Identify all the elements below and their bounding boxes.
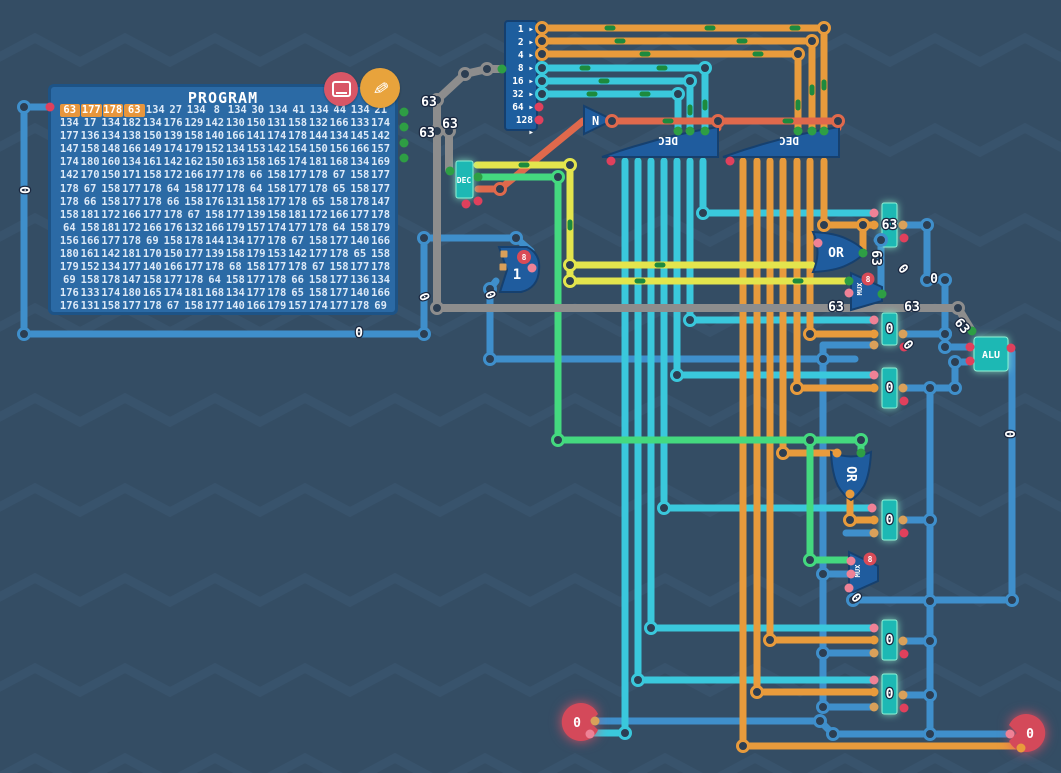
signal-on-mark xyxy=(688,105,693,116)
wire-value-label: 63 xyxy=(904,300,920,315)
pin[interactable] xyxy=(845,277,854,286)
wire-node[interactable] xyxy=(419,233,430,244)
wire-node[interactable] xyxy=(620,728,631,739)
signal-on-mark xyxy=(587,92,598,97)
pin[interactable] xyxy=(607,157,616,166)
wire-node[interactable] xyxy=(818,648,829,659)
pin[interactable] xyxy=(900,704,909,713)
pin[interactable] xyxy=(674,127,683,136)
pin[interactable] xyxy=(400,139,409,148)
wire-node[interactable] xyxy=(953,303,964,314)
wire-node[interactable] xyxy=(673,89,684,100)
pin[interactable] xyxy=(833,449,842,458)
wire-node[interactable] xyxy=(419,329,430,340)
wire-node[interactable] xyxy=(672,370,683,381)
wire-node[interactable] xyxy=(19,329,30,340)
wire-node[interactable] xyxy=(537,89,548,100)
pin[interactable] xyxy=(814,239,823,248)
pin[interactable] xyxy=(586,730,595,739)
pin[interactable] xyxy=(1017,744,1026,753)
wire-node[interactable] xyxy=(940,275,951,286)
wire-node[interactable] xyxy=(460,69,471,80)
pin[interactable] xyxy=(446,167,455,176)
wire-node[interactable] xyxy=(698,208,709,219)
wire-node[interactable] xyxy=(940,342,951,353)
signal-on-mark xyxy=(615,39,626,44)
wire-node[interactable] xyxy=(815,716,826,727)
wire-node[interactable] xyxy=(856,435,867,446)
wire-node[interactable] xyxy=(537,76,548,87)
signal-on-mark xyxy=(599,79,610,84)
wire-node[interactable] xyxy=(925,515,936,526)
wire-node[interactable] xyxy=(537,49,548,60)
signal-on-mark xyxy=(705,26,716,31)
pin[interactable] xyxy=(701,127,710,136)
wire-node[interactable] xyxy=(646,623,657,634)
signal-on-mark xyxy=(796,100,801,111)
wire-node[interactable] xyxy=(685,76,696,87)
pin[interactable] xyxy=(868,504,877,513)
pin[interactable] xyxy=(966,357,975,366)
wire-node[interactable] xyxy=(793,49,804,60)
pin[interactable] xyxy=(899,330,908,339)
wire-node[interactable] xyxy=(950,383,961,394)
pin[interactable] xyxy=(1006,730,1015,739)
pin[interactable] xyxy=(899,384,908,393)
pin[interactable] xyxy=(808,127,817,136)
signal-on-mark xyxy=(753,52,764,57)
wire-value-label: 0 xyxy=(16,186,31,194)
pin[interactable] xyxy=(870,384,879,393)
signal-on-mark xyxy=(635,279,646,284)
pin[interactable] xyxy=(900,650,909,659)
wire-node[interactable] xyxy=(511,233,522,244)
pin[interactable] xyxy=(474,197,483,206)
wire-node[interactable] xyxy=(685,315,696,326)
wire-node[interactable] xyxy=(950,357,961,368)
wire-value-label: 63 xyxy=(442,117,458,132)
pin[interactable] xyxy=(870,624,879,633)
pin[interactable] xyxy=(498,65,507,74)
wire-node[interactable] xyxy=(537,23,548,34)
pin[interactable] xyxy=(859,249,868,258)
wire-node[interactable] xyxy=(565,160,576,171)
wire-node[interactable] xyxy=(432,303,443,314)
wire-node[interactable] xyxy=(833,116,844,127)
pin[interactable] xyxy=(535,116,544,125)
pin[interactable] xyxy=(847,557,856,566)
pin[interactable] xyxy=(900,397,909,406)
signal-on-mark xyxy=(640,92,651,97)
wire-node[interactable] xyxy=(805,555,816,566)
wire-node[interactable] xyxy=(818,354,829,365)
wire-node[interactable] xyxy=(485,354,496,365)
pin[interactable] xyxy=(870,703,879,712)
wire-node[interactable] xyxy=(807,36,818,47)
signal-on-mark xyxy=(655,263,666,268)
signal-on-mark xyxy=(568,220,573,231)
signal-on-mark xyxy=(790,26,801,31)
wire-node[interactable] xyxy=(553,172,564,183)
pin[interactable] xyxy=(870,330,879,339)
pin[interactable] xyxy=(900,234,909,243)
signal-on-mark xyxy=(519,163,530,168)
pin[interactable] xyxy=(966,343,975,352)
pin[interactable] xyxy=(846,490,855,499)
wire-node[interactable] xyxy=(925,690,936,701)
wire-node[interactable] xyxy=(925,636,936,647)
wire-node[interactable] xyxy=(565,276,576,287)
pin[interactable] xyxy=(501,251,508,258)
wire-node[interactable] xyxy=(778,448,789,459)
circuit-canvas[interactable]: N DEC DEC DEC OR OR MUX 8 xyxy=(0,0,1061,773)
pin[interactable] xyxy=(870,649,879,658)
pin[interactable] xyxy=(400,154,409,163)
signal-on-mark xyxy=(737,39,748,44)
wire-value-label: 0 xyxy=(355,326,363,341)
signal-on-mark xyxy=(810,85,815,96)
wire-node[interactable] xyxy=(553,435,564,446)
wire-node[interactable] xyxy=(818,569,829,580)
wire-value-label: 0 xyxy=(894,262,911,278)
pin[interactable] xyxy=(870,371,879,380)
overlay-layer: 63636363636363000000000 xyxy=(0,0,1061,773)
wire-value-label: 63 xyxy=(868,250,883,266)
wire-value-label: 63 xyxy=(828,300,844,315)
wire-node[interactable] xyxy=(876,235,887,246)
pin[interactable] xyxy=(794,127,803,136)
wire-node[interactable] xyxy=(752,687,763,698)
pin[interactable] xyxy=(462,200,471,209)
pin[interactable] xyxy=(726,157,735,166)
pin[interactable] xyxy=(686,127,695,136)
pin[interactable] xyxy=(900,529,909,538)
pin[interactable] xyxy=(870,516,879,525)
pin[interactable] xyxy=(845,584,854,593)
pin[interactable] xyxy=(400,123,409,132)
wire-node[interactable] xyxy=(925,729,936,740)
wire-node[interactable] xyxy=(765,635,776,646)
wire-node[interactable] xyxy=(700,63,711,74)
wire-node[interactable] xyxy=(828,729,839,740)
pin[interactable] xyxy=(857,449,866,458)
pin[interactable] xyxy=(400,108,409,117)
wire-node[interactable] xyxy=(659,503,670,514)
wire-node[interactable] xyxy=(925,596,936,607)
wire-node[interactable] xyxy=(537,63,548,74)
signal-on-mark xyxy=(783,119,794,124)
pin[interactable] xyxy=(820,127,829,136)
pin[interactable] xyxy=(878,290,887,299)
signal-on-mark xyxy=(793,279,804,284)
pin[interactable] xyxy=(870,221,879,230)
pin[interactable] xyxy=(500,264,507,271)
wire-node[interactable] xyxy=(537,36,548,47)
wire-node[interactable] xyxy=(607,116,618,127)
pin[interactable] xyxy=(870,209,879,218)
wire-value-label: 0 xyxy=(1001,430,1016,438)
wire-node[interactable] xyxy=(819,23,830,34)
wire-node[interactable] xyxy=(633,675,644,686)
signal-on-mark xyxy=(580,66,591,71)
wire-node[interactable] xyxy=(713,116,724,127)
wire-node[interactable] xyxy=(19,102,30,113)
wire-node[interactable] xyxy=(858,220,869,231)
wire-value-label: 0 xyxy=(930,272,938,287)
pin[interactable] xyxy=(870,316,879,325)
pin[interactable] xyxy=(535,103,544,112)
signal-on-mark xyxy=(605,26,616,31)
signal-on-mark xyxy=(640,52,651,57)
wire-node[interactable] xyxy=(925,383,936,394)
wire-value-label: 63 xyxy=(419,126,435,141)
wire-node[interactable] xyxy=(792,383,803,394)
pin[interactable] xyxy=(591,717,600,726)
pin[interactable] xyxy=(870,341,879,350)
pin[interactable] xyxy=(847,570,856,579)
wire-value-label: 0 xyxy=(415,291,432,304)
wire-node[interactable] xyxy=(819,220,830,231)
wire-node[interactable] xyxy=(805,435,816,446)
pin[interactable] xyxy=(899,691,908,700)
pin[interactable] xyxy=(528,264,537,273)
wire-node[interactable] xyxy=(818,702,829,713)
pin[interactable] xyxy=(870,688,879,697)
pin[interactable] xyxy=(899,637,908,646)
wire-node[interactable] xyxy=(805,329,816,340)
wire-node[interactable] xyxy=(940,329,951,340)
wire-node[interactable] xyxy=(1007,595,1018,606)
wire-node[interactable] xyxy=(495,184,506,195)
pin[interactable] xyxy=(870,529,879,538)
pin[interactable] xyxy=(474,173,483,182)
signal-on-mark xyxy=(663,119,674,124)
wire-node[interactable] xyxy=(565,260,576,271)
pin[interactable] xyxy=(845,289,854,298)
pin[interactable] xyxy=(1007,344,1016,353)
wire-node[interactable] xyxy=(922,220,933,231)
wire-value-label: 63 xyxy=(421,95,437,110)
pin[interactable] xyxy=(870,636,879,645)
wire-node[interactable] xyxy=(738,741,749,752)
pin[interactable] xyxy=(870,676,879,685)
signal-on-mark xyxy=(703,100,708,111)
pin[interactable] xyxy=(46,103,55,112)
signal-on-mark xyxy=(822,80,827,91)
pin[interactable] xyxy=(899,516,908,525)
wire-node[interactable] xyxy=(482,64,493,75)
signal-on-mark xyxy=(657,66,668,71)
pin[interactable] xyxy=(899,221,908,230)
wire-node[interactable] xyxy=(845,515,856,526)
